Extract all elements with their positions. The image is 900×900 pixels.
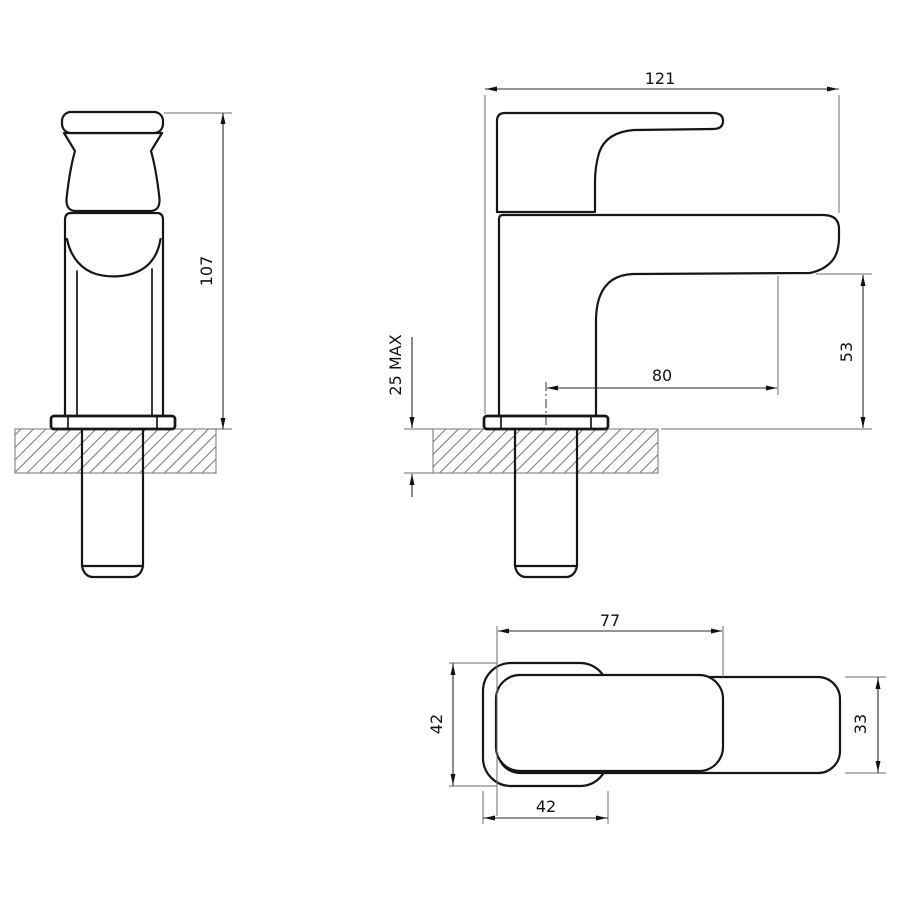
dimension-height-107: 107	[164, 113, 232, 429]
arrow-down-icon	[861, 417, 866, 428]
arrow-up-icon	[410, 474, 415, 485]
dim-label-base-width: 42	[536, 797, 556, 816]
drawing-canvas: 107 121	[0, 0, 900, 900]
arrow-right-icon	[827, 87, 838, 92]
arrow-down-icon	[221, 418, 226, 429]
top-handle-lever	[496, 675, 723, 771]
dimension-spout-height-53: 53	[661, 274, 872, 429]
side-handle-lever	[497, 113, 723, 212]
dim-label-base-depth: 42	[427, 714, 446, 734]
arrow-right-icon	[596, 816, 607, 821]
front-body	[65, 213, 163, 416]
top-view: 77 42 33 42	[427, 611, 886, 824]
dim-label-deck-thickness: 25 MAX	[386, 334, 405, 395]
arrow-left-icon	[486, 87, 497, 92]
arrow-up-icon	[876, 678, 881, 689]
arrow-up-icon	[861, 275, 866, 286]
arrow-left-icon	[484, 816, 495, 821]
side-countertop-hatch	[433, 429, 658, 473]
front-view: 107	[15, 112, 232, 577]
arrow-down-icon	[876, 761, 881, 772]
arrow-right-icon	[766, 386, 777, 391]
dimension-deck-thickness-25max: 25 MAX	[386, 334, 433, 497]
technical-drawing-page: 107 121	[0, 0, 900, 900]
front-countertop-hatch	[15, 429, 216, 473]
arrow-down-icon	[410, 417, 415, 428]
front-handle-body	[64, 133, 162, 211]
dim-label-handle-length: 77	[600, 611, 620, 630]
arrow-right-icon	[711, 629, 722, 634]
arrow-up-icon	[221, 113, 226, 124]
dim-label-height: 107	[197, 256, 216, 287]
dim-label-spout-height: 53	[837, 342, 856, 362]
arrow-up-icon	[451, 664, 456, 675]
dimension-spout-width-33: 33	[845, 677, 886, 773]
side-body-spout	[499, 215, 839, 416]
arrow-left-icon	[498, 629, 509, 634]
dimension-base-width-42: 42	[483, 791, 608, 824]
side-view: 121 53 80 25 MAX	[386, 69, 872, 577]
dim-label-overall-length: 121	[645, 69, 676, 88]
front-handle-lever	[62, 112, 163, 133]
dim-label-spout-width: 33	[851, 714, 870, 734]
dim-label-spout-reach: 80	[652, 366, 672, 385]
arrow-down-icon	[451, 774, 456, 785]
